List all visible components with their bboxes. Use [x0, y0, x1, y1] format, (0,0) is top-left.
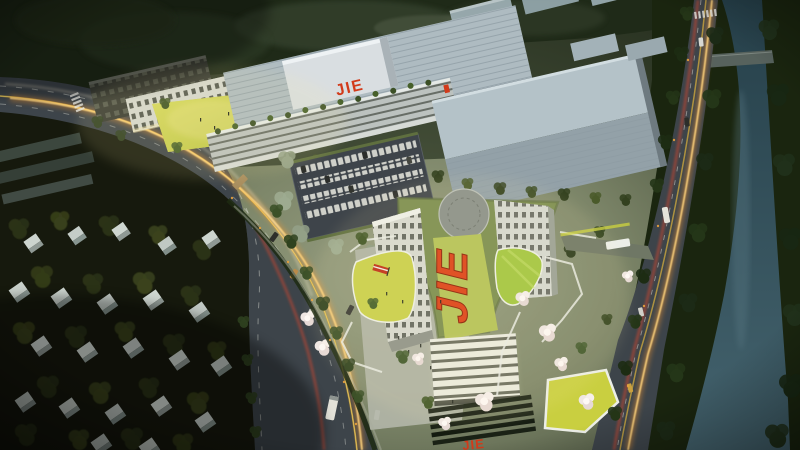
lighting-overlays	[0, 0, 800, 450]
vignette	[0, 0, 800, 450]
aerial-rendering-canvas: Dusk aerial rendering of the JIE manufac…	[0, 0, 800, 450]
campus-aerial-scene: Dusk aerial rendering of the JIE manufac…	[0, 0, 800, 450]
